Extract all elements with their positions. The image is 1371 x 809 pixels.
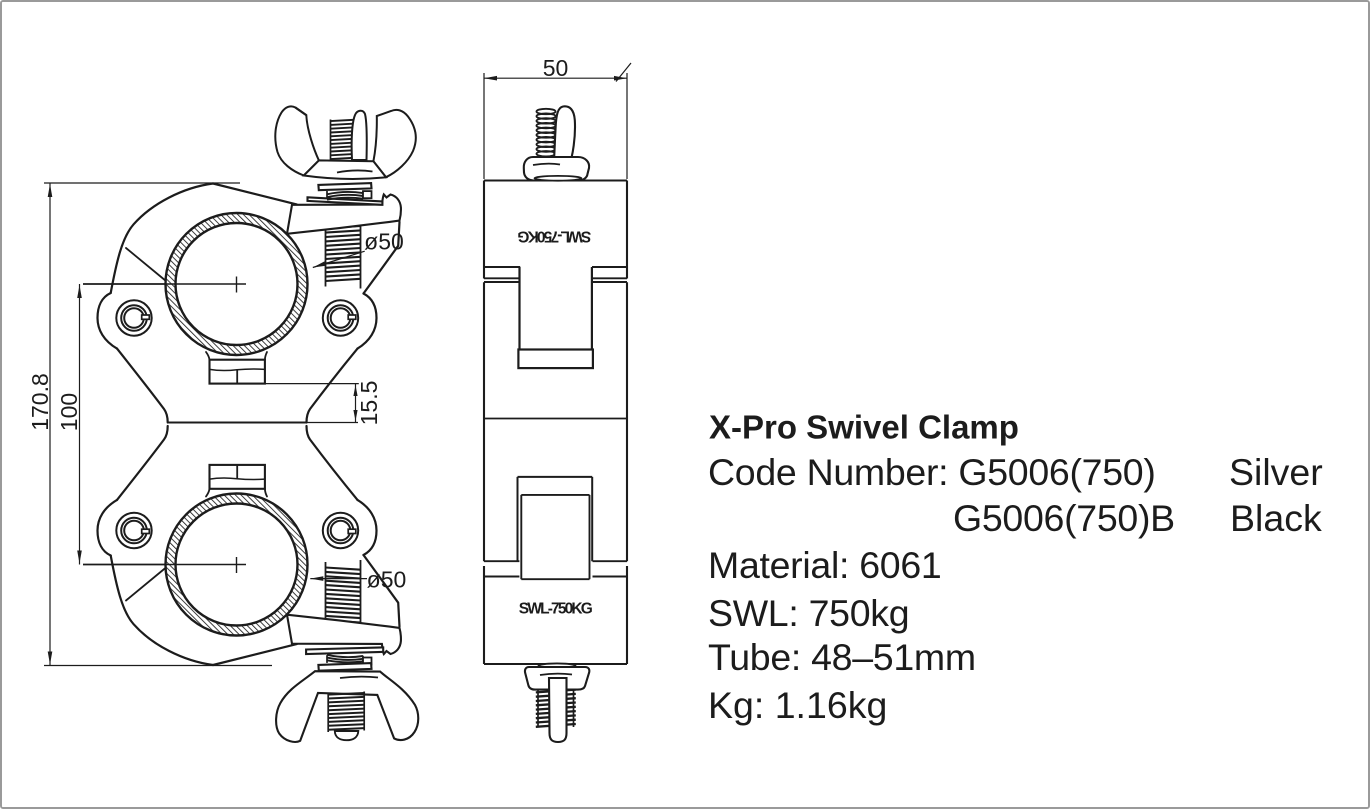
svg-text:SWL: 750kg: SWL: 750kg bbox=[708, 592, 909, 634]
svg-text:15.5: 15.5 bbox=[356, 381, 382, 426]
svg-text:G5006(750)B: G5006(750)B bbox=[953, 497, 1175, 539]
svg-text:ø50: ø50 bbox=[364, 229, 404, 255]
svg-text:ø50: ø50 bbox=[367, 567, 407, 593]
svg-text:Black: Black bbox=[1230, 497, 1322, 539]
svg-text:170.8: 170.8 bbox=[27, 373, 53, 431]
svg-text:Material: 6061: Material: 6061 bbox=[708, 544, 941, 586]
svg-text:Code Number: G5006(750): Code Number: G5006(750) bbox=[708, 451, 1156, 493]
svg-text:Silver: Silver bbox=[1229, 451, 1323, 493]
svg-text:SWL-750KG: SWL-750KG bbox=[517, 228, 591, 245]
svg-text:Kg: 1.16kg: Kg: 1.16kg bbox=[708, 684, 887, 726]
svg-text:SWL-750KG: SWL-750KG bbox=[519, 601, 593, 618]
svg-text:50: 50 bbox=[543, 55, 569, 81]
svg-text:100: 100 bbox=[56, 393, 82, 431]
svg-text:Tube: 48–51mm: Tube: 48–51mm bbox=[708, 636, 976, 678]
svg-text:X-Pro Swivel Clamp: X-Pro Swivel Clamp bbox=[709, 408, 1019, 445]
